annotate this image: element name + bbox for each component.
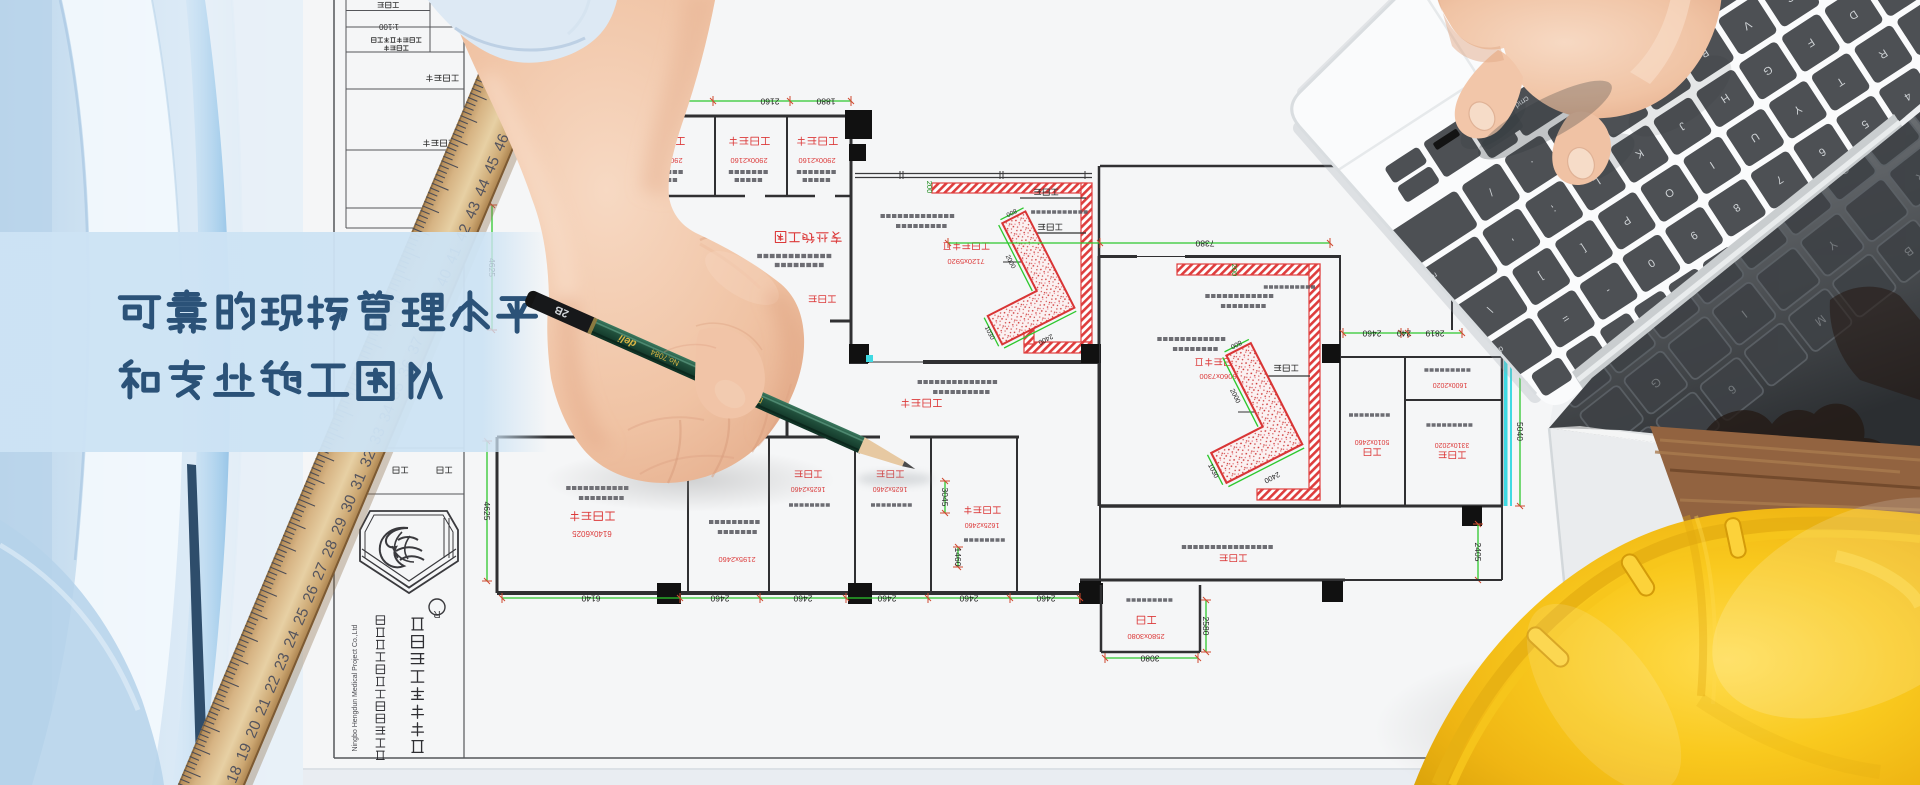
svg-text:1625x2460: 1625x2460 <box>965 521 1000 528</box>
svg-text:1880: 1880 <box>816 97 835 107</box>
svg-text:200: 200 <box>1230 264 1239 277</box>
svg-text:Ningbo Hengdun Medical Project: Ningbo Hengdun Medical Project Co.,Ltd <box>352 624 359 751</box>
svg-text:1:100: 1:100 <box>378 22 399 31</box>
svg-text:2900x2160: 2900x2160 <box>730 156 767 165</box>
svg-text:2460: 2460 <box>710 594 729 604</box>
svg-text:240: 240 <box>1397 329 1411 339</box>
svg-text:3045: 3045 <box>940 488 950 507</box>
svg-text:2460: 2460 <box>1036 594 1055 604</box>
svg-text:2460: 2460 <box>793 594 812 604</box>
svg-text:2160: 2160 <box>760 97 779 107</box>
svg-text:2580: 2580 <box>1201 617 1211 636</box>
svg-text:1625x2460: 1625x2460 <box>873 485 908 492</box>
svg-text:2819: 2819 <box>1425 329 1444 339</box>
svg-text:5040: 5040 <box>1515 422 1525 441</box>
svg-text:2405: 2405 <box>1473 543 1483 562</box>
svg-text:2900x2160: 2900x2160 <box>798 156 835 165</box>
svg-text:6140x6025: 6140x6025 <box>572 529 612 538</box>
svg-text:6140: 6140 <box>581 594 600 604</box>
svg-text:1600x2020: 1600x2020 <box>1433 381 1468 388</box>
svg-text:7380: 7380 <box>1195 239 1214 249</box>
svg-text:2580x3080: 2580x3080 <box>1127 632 1164 641</box>
svg-text:4625: 4625 <box>482 502 492 521</box>
svg-text:3310x2020: 3310x2020 <box>1435 441 1470 448</box>
svg-text:200: 200 <box>925 181 934 194</box>
svg-text:2460: 2460 <box>1362 329 1381 339</box>
svg-text:2460: 2460 <box>959 594 978 604</box>
svg-text:R: R <box>433 608 440 619</box>
svg-text:3080: 3080 <box>1140 654 1159 664</box>
svg-text:2195x2460: 2195x2460 <box>718 555 755 564</box>
svg-text:7120x5920: 7120x5920 <box>947 257 984 266</box>
svg-text:2460: 2460 <box>877 594 896 604</box>
svg-text:1460: 1460 <box>953 548 963 567</box>
svg-text:5010x2460: 5010x2460 <box>1355 438 1390 445</box>
